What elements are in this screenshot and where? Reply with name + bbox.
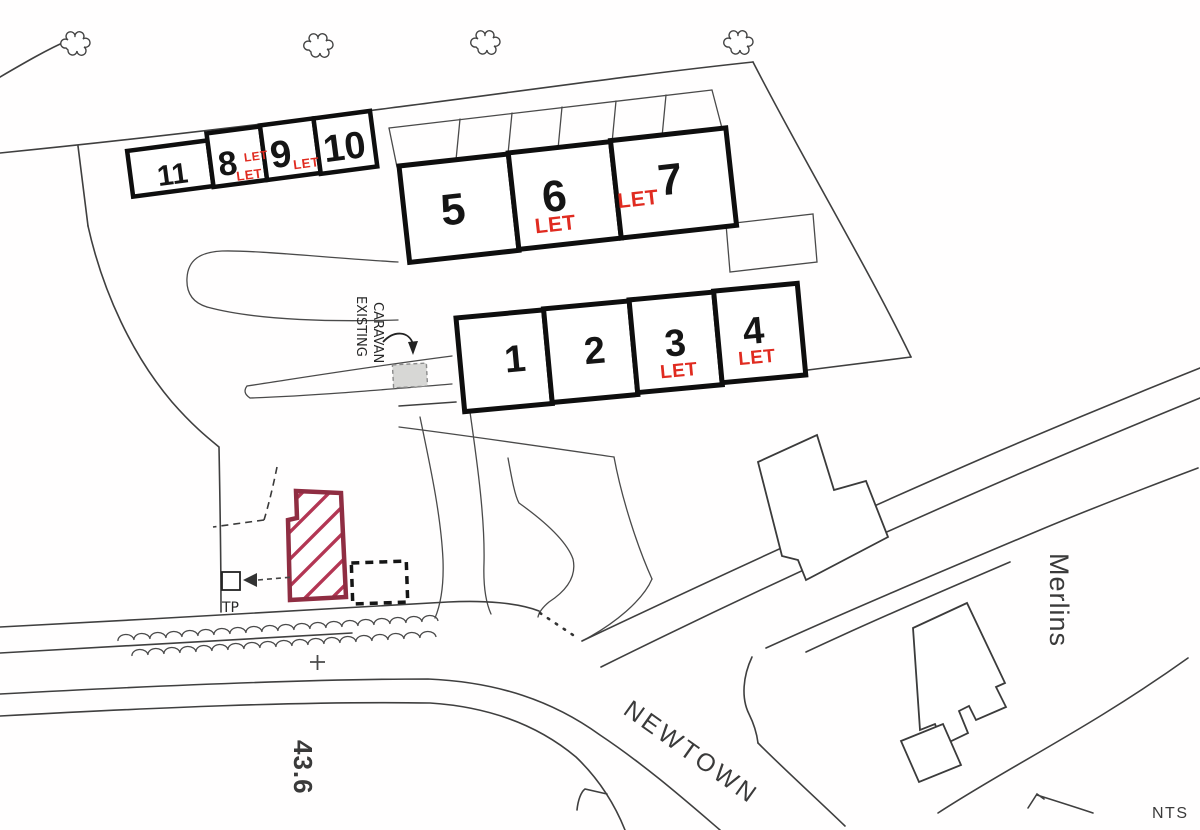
junction-square-fragment — [577, 789, 607, 810]
tree-icon — [471, 31, 500, 54]
plot-row-top: 11 8 9 10 LET LET LET — [126, 111, 377, 199]
building-outline-merlins — [913, 603, 1006, 745]
existing-caravan-label-line2: CARAVAN — [370, 302, 385, 363]
existing-caravan-annotation: EXISTING CARAVAN — [353, 296, 428, 388]
hedge-lower-scallops — [132, 631, 436, 656]
plot-row-bottom: 1 2 3 4 LET LET — [456, 283, 806, 411]
newtown-road-east-edge — [758, 743, 845, 826]
existing-caravan-label-line1: EXISTING — [353, 296, 368, 357]
bay-divider — [558, 107, 562, 149]
plot-3-let-label: LET — [659, 359, 698, 383]
newtown-road-west-edge — [0, 679, 720, 830]
tree-canopy-marks — [61, 31, 753, 57]
curtilage-dash-vertical — [264, 467, 277, 520]
junction-corner-wiggle — [744, 657, 758, 743]
bay-divider — [456, 119, 460, 160]
tree-icon — [724, 31, 753, 54]
branch-road-se-edge — [601, 398, 1200, 667]
west-road-line-1 — [0, 601, 539, 627]
scale-note-label: NTS — [1152, 805, 1189, 822]
site-plan-scan: 11 8 9 10 LET LET LET 5 6 7 LET LET 1 2 … — [0, 0, 1200, 830]
boundary-under-plots-left — [399, 402, 456, 406]
tree-icon — [304, 34, 333, 57]
plot-1-number: 1 — [503, 338, 528, 382]
yard-diagonal-top — [399, 427, 614, 457]
bay-strip-right-edge — [712, 90, 723, 132]
tp-label: TP — [221, 600, 239, 616]
plot-7-let-label: LET — [616, 186, 659, 213]
west-connector-line — [78, 146, 88, 226]
tree-icon — [61, 32, 90, 55]
dashed-annexe-outline — [351, 561, 407, 604]
caravan-outline — [392, 363, 427, 388]
telegraph-pole-marker: TP — [221, 572, 293, 616]
branch-road-nw-edge — [582, 368, 1200, 641]
plot-4-let-label: LET — [737, 346, 776, 370]
west-boundary-curve — [88, 226, 221, 612]
yard-curve-1 — [420, 417, 443, 618]
plot-2-number: 2 — [582, 329, 607, 373]
hook-track-lower-edge — [207, 307, 398, 321]
yard-right-edge — [614, 457, 652, 579]
plot-11-number: 11 — [155, 157, 190, 193]
parcel-outline-right-of-plot-7 — [726, 214, 817, 272]
tp-square — [222, 572, 240, 590]
plot-6-let-label: LET — [534, 211, 577, 238]
bay-strip-left-edge — [389, 128, 397, 167]
bay-divider — [612, 101, 616, 143]
bay-divider — [662, 95, 666, 137]
neighbouring-buildings — [758, 435, 1006, 782]
bottom-right-hook-mark — [1028, 794, 1093, 813]
yard-bulge-curve — [508, 458, 574, 617]
tp-arrowhead — [243, 573, 257, 587]
road-name-label: NEWTOWN — [619, 695, 765, 810]
yard-curve-2 — [470, 412, 491, 614]
spot-level-label: 43.6 — [288, 740, 318, 795]
site-plan-drawing: 11 8 9 10 LET LET LET 5 6 7 LET LET 1 2 … — [0, 0, 1200, 830]
yard-south-edge — [582, 579, 652, 641]
caravan-arrowhead — [408, 341, 418, 355]
hedge-row — [118, 615, 438, 656]
top-left-diagonal-boundary — [0, 40, 69, 77]
wedge-track-end-cap — [245, 386, 250, 398]
plot-10-number: 10 — [321, 124, 368, 171]
plot-row-middle: 5 6 7 LET LET — [399, 128, 737, 263]
plus-survey-mark — [310, 655, 325, 670]
property-name-label: Merlins — [1044, 553, 1074, 647]
bay-divider — [508, 113, 512, 154]
road-network — [0, 368, 1200, 830]
west-road-line-2 — [0, 633, 352, 653]
dashed-curtilage-lines — [213, 467, 277, 527]
yard-dotted-boundary — [540, 613, 579, 639]
building-outline-north — [758, 435, 888, 580]
boundary-under-plots-right — [800, 357, 911, 371]
